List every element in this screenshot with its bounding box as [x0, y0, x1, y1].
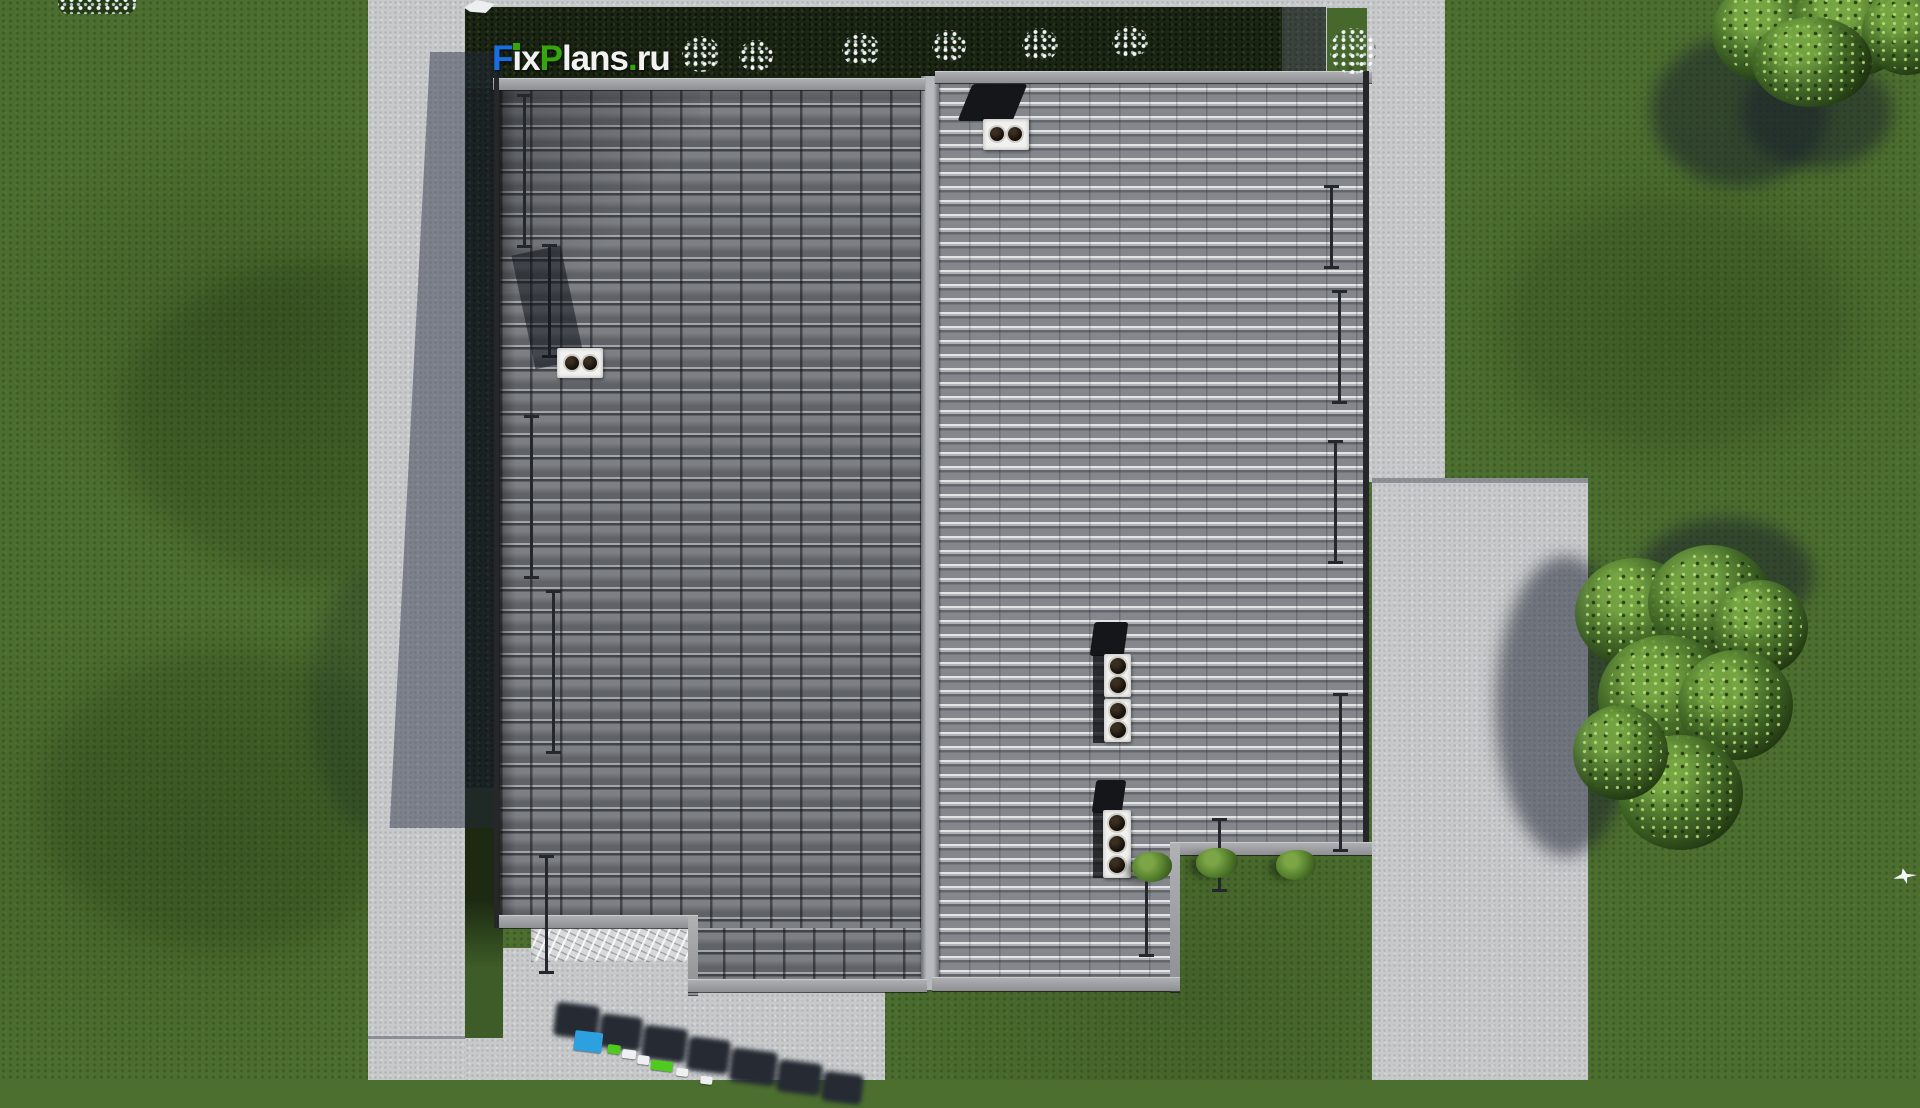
brand-letters-lans: lans [562, 39, 628, 78]
roof-edge-right [1363, 71, 1369, 855]
vent-hole [1109, 815, 1125, 831]
roof-section-right-upper [1176, 74, 1366, 850]
snow-rail [552, 592, 555, 752]
snow-rail [523, 96, 526, 246]
brand-dot: . [628, 39, 637, 78]
letter-block [686, 1036, 732, 1075]
vent-hole [990, 127, 1004, 141]
fascia-bottom-right-lower [932, 977, 1180, 991]
watermark-face-white [700, 1076, 713, 1085]
vent-hole [1110, 703, 1126, 719]
vent-cap-shadow [1090, 622, 1129, 656]
letter-block [729, 1047, 779, 1086]
flower-bush [932, 30, 966, 62]
vent-hole [1110, 677, 1126, 693]
vent-hole [583, 356, 597, 370]
walkway-right [1366, 0, 1445, 482]
roof-vent-box [983, 119, 1029, 150]
roof-ridge [921, 76, 939, 990]
snow-rail [1330, 187, 1333, 267]
letter-block [776, 1059, 824, 1096]
fascia-top-left [493, 78, 925, 90]
snow-rail [1338, 292, 1341, 402]
letter-block [821, 1071, 864, 1106]
snow-rail [1334, 442, 1337, 562]
lawn-dark-patch [1500, 200, 1850, 450]
snow-rail [1145, 873, 1148, 955]
fascia-bottom-extension [688, 979, 927, 992]
watermark-face-white [637, 1055, 650, 1065]
brand-letter-i: i [512, 39, 521, 78]
vent-hole [565, 356, 579, 370]
brand-letter-f: F [492, 39, 512, 78]
vent-hole [1110, 722, 1126, 738]
brand-watermark: FixPlans.ru [492, 39, 670, 79]
roof-vent-box [1103, 810, 1131, 878]
corner-bush [58, 0, 136, 14]
flower-bush [1112, 26, 1148, 58]
brand-letter-x: x [521, 39, 539, 78]
fascia-top-right [935, 71, 1372, 83]
tree-foliage [1573, 705, 1668, 800]
flower-bush [682, 36, 720, 72]
tree-right [1563, 540, 1808, 870]
roof-section-left [500, 81, 925, 928]
flower-bush [1022, 28, 1058, 62]
roof-vent-box [1104, 699, 1131, 742]
stone-paving-patch [531, 926, 693, 962]
flower-bush [739, 40, 773, 72]
flower-bush [1330, 28, 1376, 74]
vent-cap-shadow [1092, 780, 1127, 813]
vent-hole [1109, 836, 1125, 852]
fascia-bottom-left [499, 915, 695, 928]
watermark-face-white [622, 1049, 637, 1060]
walkway-seam [368, 1036, 465, 1039]
snow-rail [1339, 695, 1342, 850]
snow-rail [545, 857, 548, 972]
roof-edge-left [494, 78, 499, 928]
roof-vent-box [1104, 654, 1131, 697]
vent-hole [1110, 658, 1126, 674]
brand-letter-p: P [540, 39, 562, 78]
watermark-face-green [607, 1044, 621, 1055]
tree-top-right [1712, 0, 1920, 94]
flower-bush [842, 33, 880, 67]
watermark-face-blue [573, 1030, 603, 1053]
brand-letters-ru: ru [637, 39, 670, 78]
snow-rail [530, 417, 533, 577]
tree-foliage [1752, 17, 1872, 107]
roof-section-right-lower [939, 74, 1176, 984]
watermark-face-white [676, 1068, 689, 1077]
vent-hole [1008, 127, 1022, 141]
vent-hole [1109, 857, 1125, 873]
patio-top-edge [1372, 478, 1588, 483]
roof-vent-box [557, 348, 603, 378]
